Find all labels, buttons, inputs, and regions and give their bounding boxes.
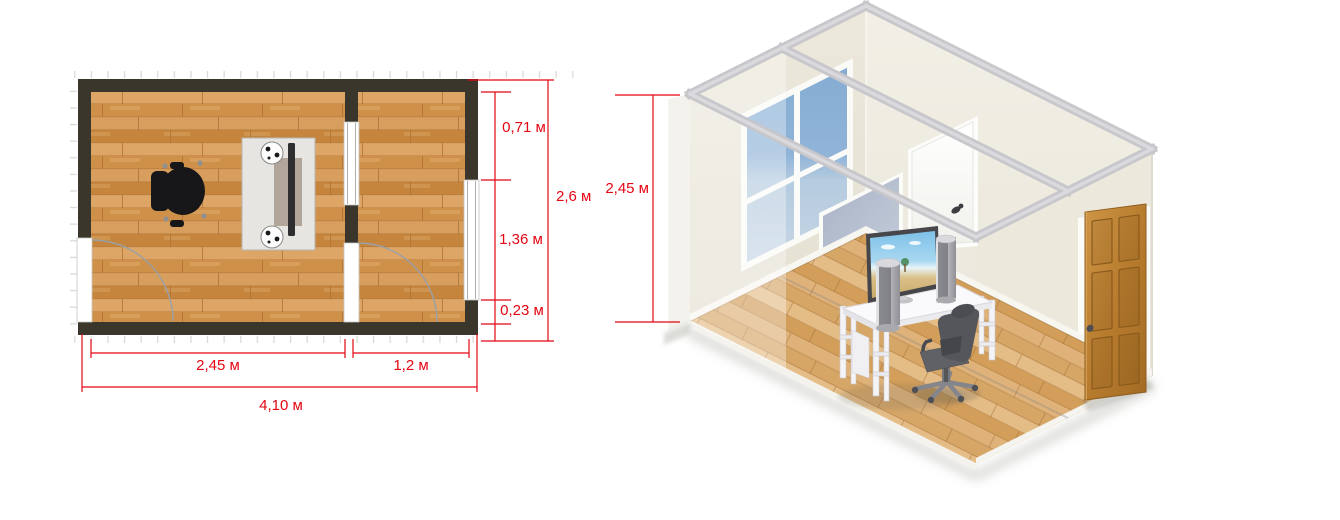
- scene-graphics: [0, 0, 1340, 520]
- plan-desk[interactable]: [242, 138, 315, 250]
- plan-window-right[interactable]: [464, 180, 479, 300]
- wall-outer-left: [666, 94, 690, 332]
- plan-speaker-bottom: [261, 226, 283, 248]
- dim-label-023: 0,23 м: [500, 302, 544, 320]
- speaker-right-3d[interactable]: [936, 235, 956, 304]
- dim-label-12: 1,2 м: [393, 357, 428, 375]
- dim-label-410: 4,10 м: [259, 397, 303, 415]
- dim-label-136: 1,36 м: [499, 231, 543, 249]
- dim-label-071: 0,71 м: [502, 119, 546, 137]
- plan-speaker-top: [261, 142, 283, 164]
- speaker-left-3d[interactable]: [876, 259, 900, 333]
- door-handle-dot: [959, 204, 964, 209]
- dim-label-245-height: 2,45 м: [605, 180, 649, 198]
- room-3d: [615, 6, 1154, 482]
- dim-label-245-bottom: 2,45 м: [196, 357, 240, 375]
- dim-label-26: 2,6 м: [556, 188, 591, 206]
- planner-canvas: 0,71 м 1,36 м 0,23 м 2,6 м 2,45 м 1,2 м …: [0, 0, 1340, 520]
- plan-window-partition[interactable]: [344, 122, 359, 205]
- wood-door-3d[interactable]: [1085, 204, 1146, 400]
- glass-partition-haze: [690, 46, 786, 370]
